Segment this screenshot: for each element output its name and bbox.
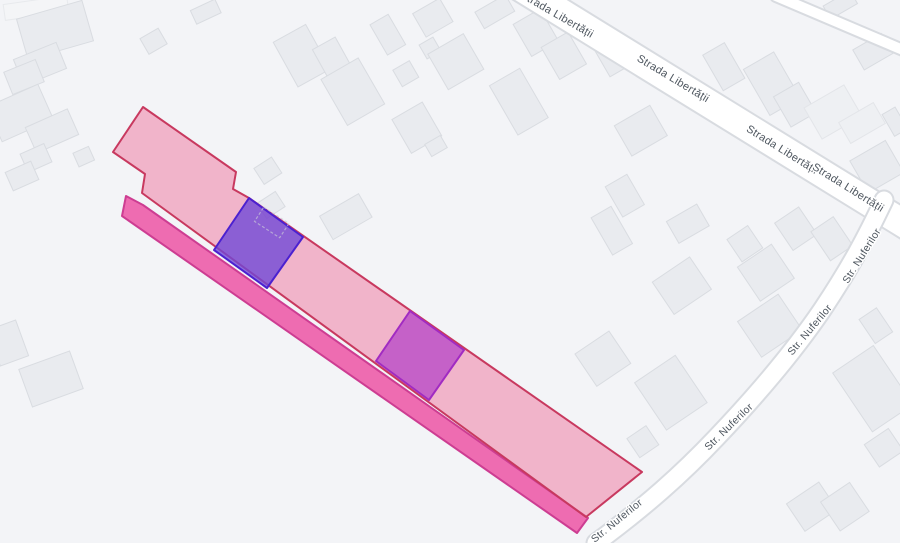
map-canvas[interactable]: Strada Libertății Strada Libertății Stra… [0,0,900,543]
map-svg: Strada Libertății Strada Libertății Stra… [0,0,900,543]
